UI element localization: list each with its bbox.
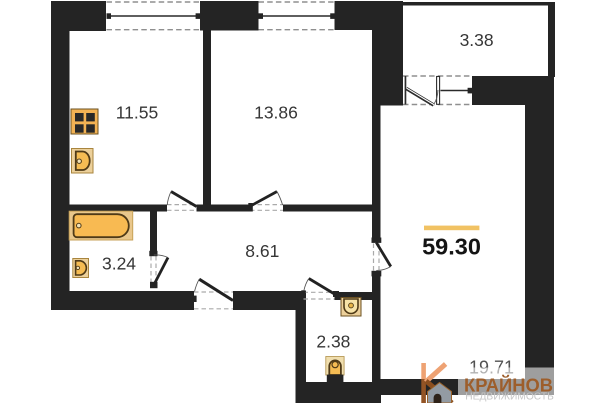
svg-text:11.55: 11.55 — [116, 103, 159, 123]
svg-text:8.61: 8.61 — [245, 241, 279, 261]
svg-text:3.24: 3.24 — [102, 253, 136, 273]
svg-text:13.86: 13.86 — [254, 103, 298, 123]
svg-text:2.38: 2.38 — [316, 332, 350, 352]
svg-text:59.30: 59.30 — [422, 234, 481, 260]
svg-text:НЕДВИЖИМОСТЬ: НЕДВИЖИМОСТЬ — [465, 391, 554, 402]
svg-text:3.38: 3.38 — [460, 30, 494, 50]
